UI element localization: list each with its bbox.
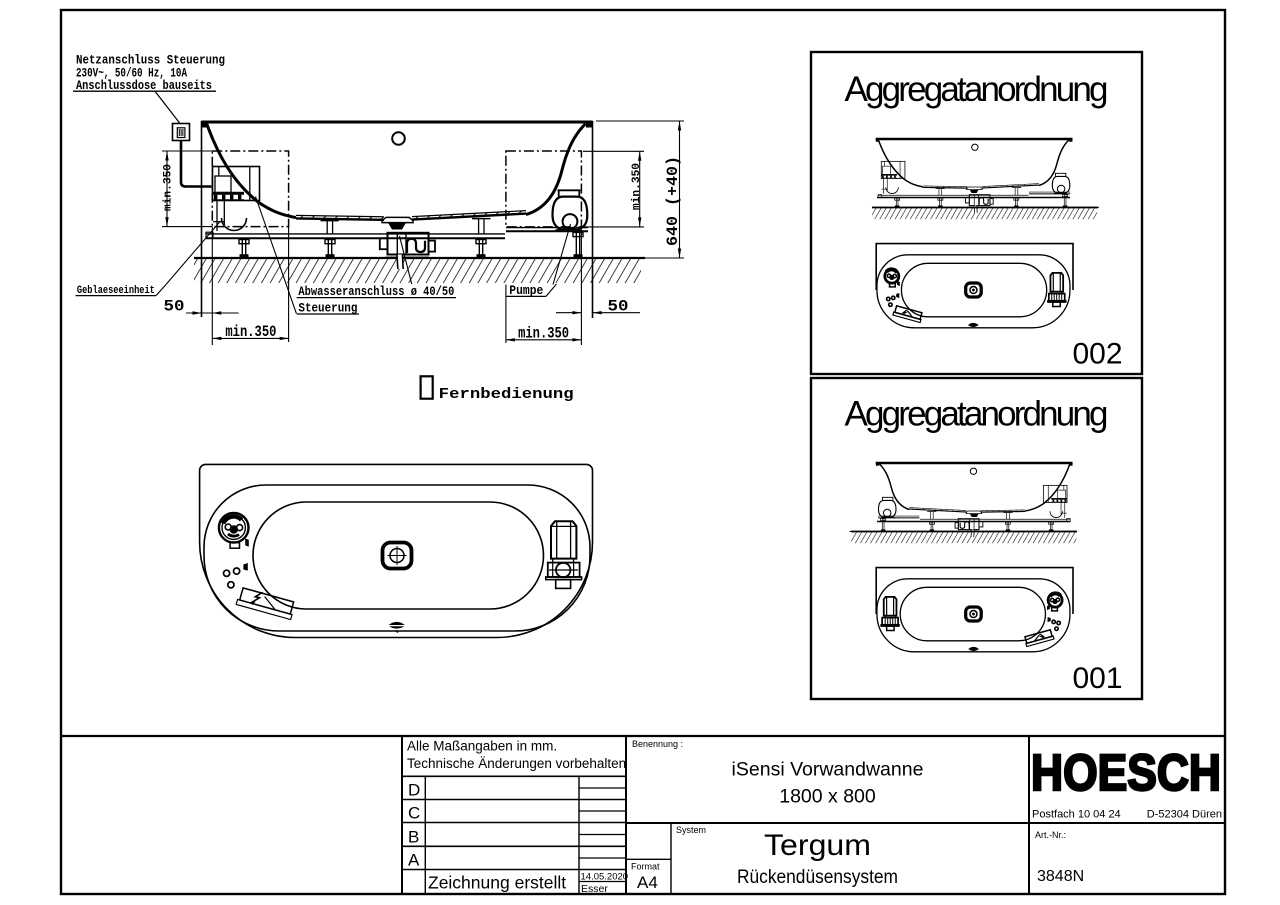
svg-text:A: A — [408, 851, 420, 870]
svg-text:Zeichnung erstellt: Zeichnung erstellt — [428, 873, 566, 893]
svg-text:Technische Änderungen vorbehal: Technische Änderungen vorbehalten — [407, 756, 626, 771]
svg-text:50: 50 — [164, 298, 185, 316]
svg-text:Art.-Nr.:: Art.-Nr.: — [1035, 830, 1066, 840]
svg-text:640 (+40): 640 (+40) — [664, 156, 682, 246]
svg-text:min.350: min.350 — [163, 164, 175, 211]
svg-text:Aggregatanordnung: Aggregatanordnung — [845, 394, 1109, 433]
svg-text:Alle Maßangaben in mm.: Alle Maßangaben in mm. — [407, 739, 557, 754]
svg-text:min.350: min.350 — [631, 163, 643, 210]
svg-text:min.350: min.350 — [518, 324, 569, 342]
svg-text:C: C — [408, 804, 420, 823]
svg-text:Steuerung: Steuerung — [298, 301, 357, 316]
svg-text:min.350: min.350 — [225, 323, 276, 341]
svg-text:Tergum: Tergum — [764, 829, 871, 862]
svg-text:Aggregatanordnung: Aggregatanordnung — [845, 70, 1109, 109]
svg-text:D-52304 Düren: D-52304 Düren — [1147, 809, 1222, 821]
svg-text:001: 001 — [1072, 662, 1122, 695]
svg-text:iSensi Vorwandwanne: iSensi Vorwandwanne — [732, 759, 924, 781]
svg-text:Fernbedienung: Fernbedienung — [439, 386, 574, 403]
svg-text:1800 x 800: 1800 x 800 — [779, 786, 876, 808]
svg-text:Rückendüsensystem: Rückendüsensystem — [737, 867, 898, 888]
svg-text:50: 50 — [608, 298, 629, 316]
svg-text:D: D — [408, 781, 420, 800]
svg-text:002: 002 — [1072, 338, 1122, 371]
svg-text:System: System — [676, 825, 706, 835]
svg-text:A4: A4 — [637, 873, 658, 892]
svg-text:14.05.2020: 14.05.2020 — [581, 872, 629, 883]
svg-text:Esser: Esser — [581, 883, 608, 895]
svg-text:Benennung :: Benennung : — [632, 739, 683, 749]
svg-text:Format: Format — [631, 862, 660, 872]
svg-text:Postfach 10 04 24: Postfach 10 04 24 — [1032, 809, 1121, 821]
svg-text:B: B — [408, 828, 419, 847]
svg-text:Abwasseranschluss ø 40/50: Abwasseranschluss ø 40/50 — [298, 284, 454, 299]
svg-text:3848N: 3848N — [1037, 868, 1084, 885]
svg-text:HOESCH: HOESCH — [1031, 744, 1221, 801]
